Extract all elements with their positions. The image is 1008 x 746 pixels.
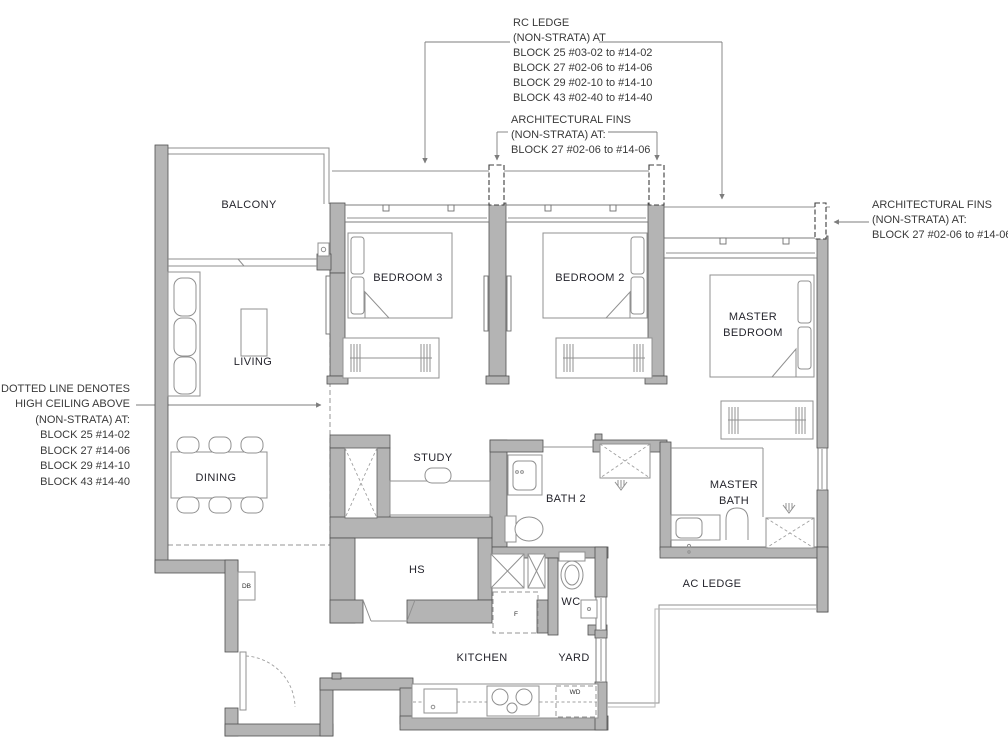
entrance-door [240,652,295,710]
fridge-label: F [514,611,518,618]
master-bath-shower [766,518,814,548]
fins-top-line-1: ARCHITECTURAL FINS [511,114,631,126]
fins-right-line-1: ARCHITECTURAL FINS [872,199,992,211]
washer-dryer-label: WD [570,689,581,696]
room-label-master-bath-1: MASTER [710,479,758,491]
kitchen-sink [424,689,457,713]
rc-ledge-line-3: BLOCK 25 #03-02 to #14-02 [513,47,652,59]
room-label-bedroom2: BEDROOM 2 [555,272,625,284]
room-label-bath2: BATH 2 [546,493,586,505]
balcony-railing [168,148,329,204]
high-ceiling-line-3: (NON-STRATA) AT: [35,414,130,426]
master-wardrobe [721,401,813,439]
shaft-box [345,448,377,518]
master-bed [710,275,814,377]
room-label-master-bath-2: BATH [719,495,749,507]
high-ceiling-line-5: BLOCK 27 #14-06 [40,445,130,457]
room-label-hs: HS [409,564,425,576]
room-label-ac-ledge: AC LEDGE [683,578,742,590]
bedroom2-wardrobe [556,338,652,378]
annotation-fins-top: ARCHITECTURAL FINS (NON-STRATA) AT: BLOC… [511,114,650,156]
annotation-fins-right: ARCHITECTURAL FINS (NON-STRATA) AT: BLOC… [872,199,1008,241]
room-label-master-bedroom-2: BEDROOM [723,327,783,339]
room-label-living: LIVING [234,356,272,368]
wc-basin [581,600,597,618]
bath2-vanity [508,455,542,495]
room-label-balcony: BALCONY [221,199,277,211]
study-chair [425,468,451,483]
fins-right-line-2: (NON-STRATA) AT: [872,214,967,226]
appliance-box-2 [528,554,545,588]
high-ceiling-line-2: HIGH CEILING ABOVE [15,398,130,410]
bedroom3-sliding-door [326,276,330,334]
bath2-shower [600,444,650,478]
room-label-study: STUDY [413,452,453,464]
wc-toilet [559,552,585,589]
room-label-yard: YARD [558,652,589,664]
floor-plan: BALCONY LIVING DINING BEDROOM 3 BEDROOM … [0,0,1008,746]
high-ceiling-line-4: BLOCK 25 #14-02 [40,429,130,441]
fins-top-line-2: (NON-STRATA) AT: [511,129,606,141]
high-ceiling-line-6: BLOCK 29 #14-10 [40,460,130,472]
ac-ledge-boundary [607,605,817,707]
master-bath-toilet [726,508,748,540]
rc-ledge-line-5: BLOCK 29 #02-10 to #14-10 [513,77,652,89]
rc-ledge-line-4: BLOCK 27 #02-06 to #14-06 [513,62,652,74]
annotation-rc-ledge: RC LEDGE (NON-STRATA) AT BLOCK 25 #03-02… [513,17,652,104]
bedroom3-wardrobe [343,338,439,378]
fins-top-line-3: BLOCK 27 #02-06 to #14-06 [511,144,650,156]
bath2-toilet [505,516,543,542]
shower-head-icon [615,480,627,490]
room-label-dining: DINING [196,472,237,484]
rc-ledge-line-1: RC LEDGE [513,17,569,29]
room-label-kitchen: KITCHEN [456,652,507,664]
room-label-master-bedroom-1: MASTER [729,311,777,323]
master-shower-head-icon [783,503,795,513]
floor-plan-drawing: BALCONY LIVING DINING BEDROOM 3 BEDROOM … [0,0,1008,746]
fins-right-line-3: BLOCK 27 #02-06 to #14-06 [872,229,1008,241]
study-desk [390,481,490,515]
sofa [168,272,200,396]
coffee-table [241,309,267,356]
high-ceiling-line-7: BLOCK 43 #14-40 [40,476,130,488]
annotation-high-ceiling: DOTTED LINE DENOTES HIGH CEILING ABOVE (… [1,383,130,488]
kitchen-hob [487,686,539,716]
appliance-box-1 [491,554,524,588]
room-label-wc: WC [561,596,580,608]
rc-ledge-lines [332,171,830,207]
db-label: DB [242,583,251,590]
high-ceiling-line-1: DOTTED LINE DENOTES [1,383,130,395]
balcony-sliding-door [168,243,329,266]
rc-ledge-line-2: (NON-STRATA) AT [513,32,606,44]
rc-ledge-line-6: BLOCK 43 #02-40 to #14-40 [513,92,652,104]
room-label-bedroom3: BEDROOM 3 [373,272,443,284]
